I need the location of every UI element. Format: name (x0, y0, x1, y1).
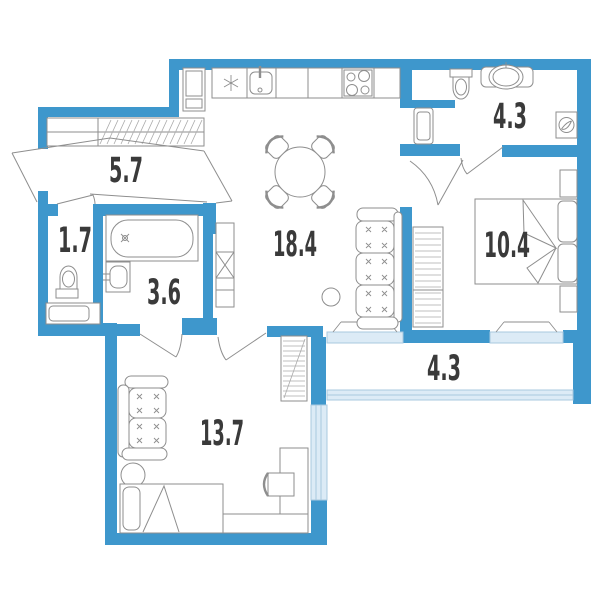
room-label-wc: 1.7 (58, 221, 92, 261)
sofa-seat (129, 388, 166, 418)
wall-bath2-bottom-right (502, 145, 582, 157)
wall-room-left (105, 323, 117, 545)
bathroom-door-swing (140, 334, 182, 357)
wall-room-right-lower (311, 500, 327, 545)
room-label-bathroom: 3.6 (147, 273, 181, 313)
bathroom2-door-swing (461, 147, 503, 174)
sofa-seat (356, 285, 394, 317)
room-label-hallway: 5.7 (109, 151, 143, 191)
side-table-symbol (322, 288, 340, 306)
window-room-side (311, 405, 327, 500)
desk-symbol (223, 448, 308, 533)
hall-door-swing (204, 151, 232, 203)
kitchen-fixtures (183, 66, 400, 111)
room-label-balcony: 4.3 (427, 349, 461, 389)
sofa-armrest (122, 448, 167, 460)
room-label-bathroom2: 4.3 (493, 97, 527, 137)
wall-niche-top (412, 100, 455, 108)
wall-bath-right (203, 216, 213, 319)
bedroom-wardrobe-symbol (413, 227, 443, 327)
toilet2-symbol (450, 69, 472, 99)
sink-bowl (489, 65, 523, 89)
window-living-balcony (327, 332, 403, 343)
window-bedroom-balcony (490, 332, 563, 343)
wc-fixtures (46, 266, 100, 324)
wall-bath2-bottom-left (400, 144, 460, 156)
wall-hallway-bottom (93, 204, 216, 216)
sofa-armrest (125, 376, 168, 388)
bed-pillow (558, 244, 577, 282)
sofa-armrest (357, 208, 398, 221)
bed-pillow (123, 487, 140, 530)
room-label-living-room: 13.7 (200, 414, 244, 454)
room-door-swing (218, 333, 266, 360)
pouf-symbol (121, 463, 145, 487)
room-label-kitchen-living: 18.4 (273, 225, 317, 265)
sofa-backrest (118, 385, 129, 457)
toilet-tank (450, 69, 472, 77)
sofa-seat (129, 418, 166, 448)
wall-balcony-top-mid (400, 330, 490, 343)
wall-kitchen-left (169, 59, 179, 110)
washing-machine-symbol (556, 112, 577, 138)
wall-balcony-right (573, 343, 591, 404)
wall-hallway-top (38, 107, 179, 117)
wall-balcony-top-right (563, 330, 591, 343)
room-sofa-symbol (118, 376, 168, 460)
wc-door-swing (57, 195, 95, 204)
wall-hallway-bottom-left (38, 204, 58, 216)
toilet-tank (56, 289, 78, 298)
bedroom-door-swing (410, 160, 463, 205)
wall-bath-bottom-left (117, 324, 140, 336)
sofa-backrest (394, 212, 402, 322)
wall-kitchen-bath-divider (400, 59, 412, 108)
desk-chair-back (264, 473, 268, 496)
wall-bath-bottom-right (182, 318, 217, 335)
sofa-seat (356, 221, 394, 253)
desk-return (223, 514, 308, 533)
wall-room-bottom (105, 533, 327, 545)
wall-room-right-upper (311, 337, 326, 405)
room-label-bedroom: 10.4 (484, 226, 530, 266)
single-bed-symbol (120, 484, 223, 533)
nightstand-symbol (560, 170, 577, 197)
bed-pillow (558, 201, 577, 242)
wall-room-top-right (267, 326, 323, 337)
sofa-seat (356, 253, 394, 285)
floor-plan: 5.7 1.7 3.6 18.4 4.3 10.4 4.3 13.7 (0, 0, 601, 601)
desk-chair (268, 473, 294, 496)
corridor-cabinet-symbol (216, 223, 234, 307)
nightstand-symbol (560, 286, 577, 312)
sofa-armrest (357, 317, 398, 329)
floor-plan-drawing: 5.7 1.7 3.6 18.4 4.3 10.4 4.3 13.7 (0, 0, 601, 601)
sofa-symbol (356, 208, 402, 329)
wall-right (577, 59, 591, 344)
room-wardrobe-symbol (281, 336, 307, 401)
window-bedroom-reveal (496, 322, 557, 332)
wall-wc-bottom (38, 323, 105, 336)
wardrobe-body (413, 227, 443, 327)
